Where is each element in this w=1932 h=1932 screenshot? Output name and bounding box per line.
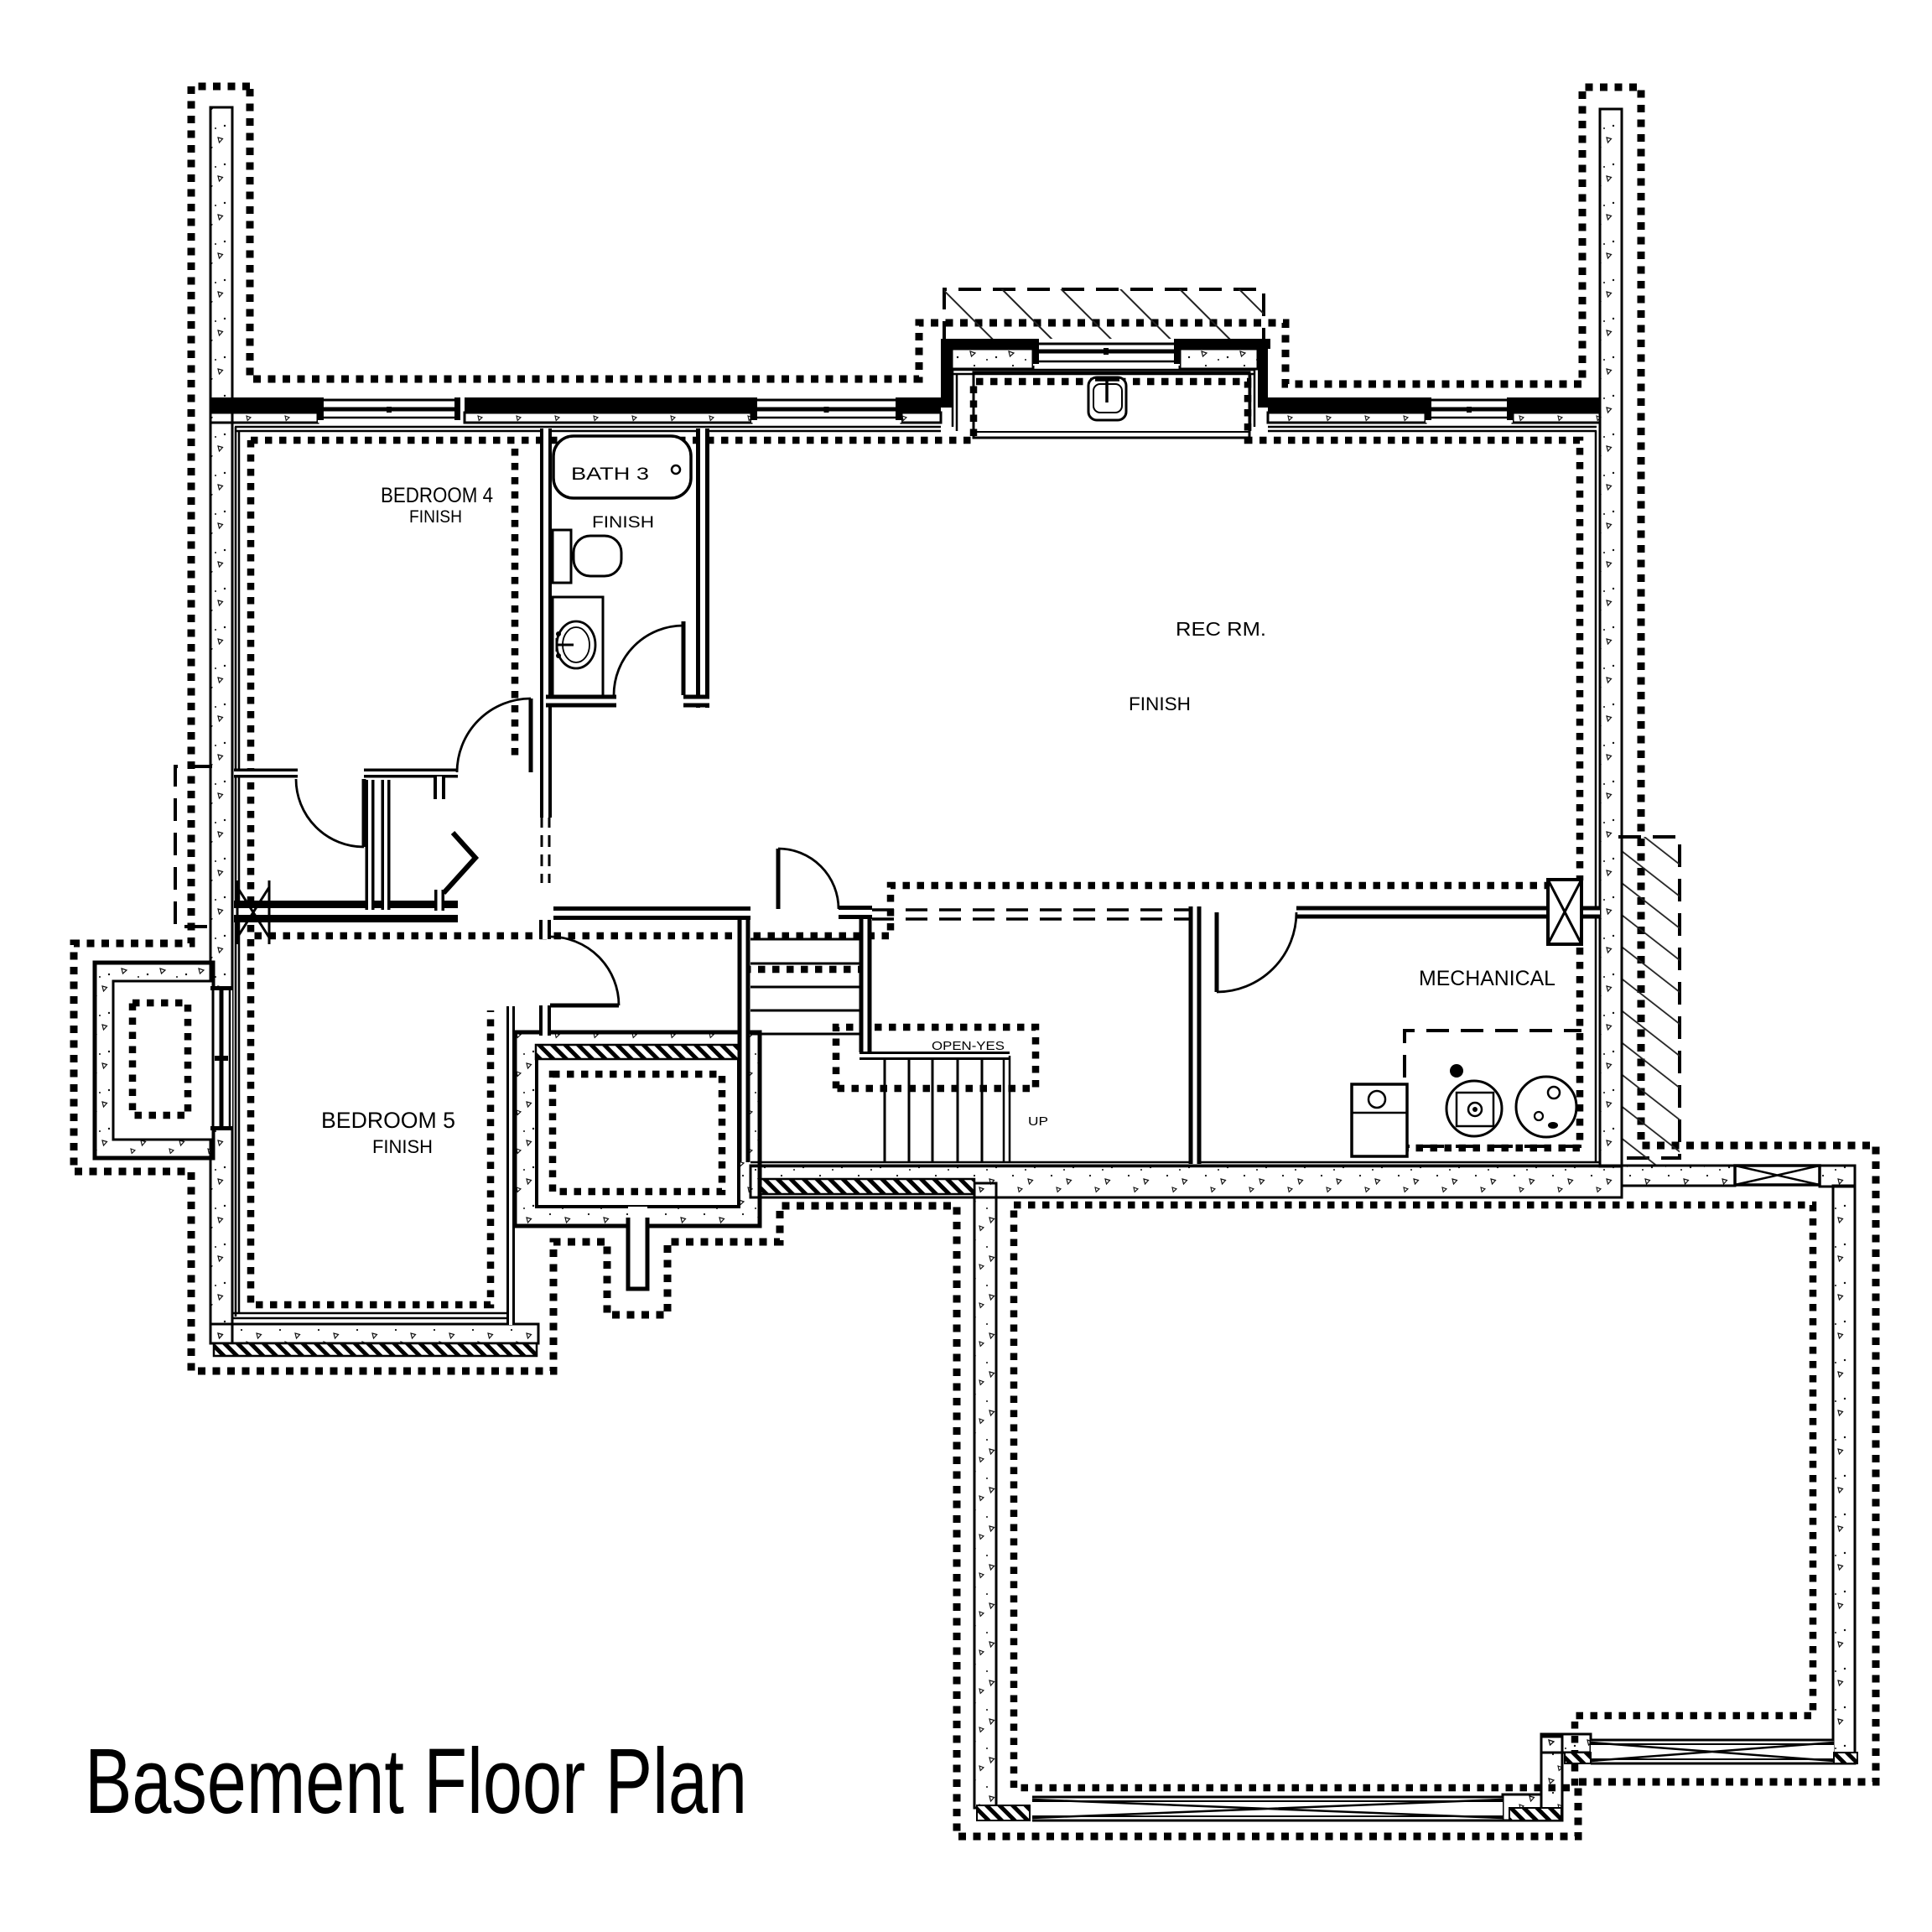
svg-text:FINISH: FINISH [1129, 693, 1191, 714]
svg-text:BATH 3: BATH 3 [571, 465, 649, 484]
svg-text:FINISH: FINISH [409, 507, 462, 527]
svg-text:BEDROOM 4: BEDROOM 4 [381, 484, 493, 507]
svg-text:Basement Floor Plan: Basement Floor Plan [85, 1730, 747, 1833]
svg-text:FINISH: FINISH [372, 1136, 433, 1157]
svg-text:FINISH: FINISH [592, 514, 654, 532]
svg-text:UP: UP [1028, 1114, 1048, 1129]
svg-text:OPEN-YES: OPEN-YES [932, 1039, 1005, 1053]
svg-text:REC RM.: REC RM. [1176, 618, 1266, 640]
svg-text:MECHANICAL: MECHANICAL [1419, 967, 1555, 990]
svg-text:BEDROOM 5: BEDROOM 5 [321, 1108, 455, 1133]
